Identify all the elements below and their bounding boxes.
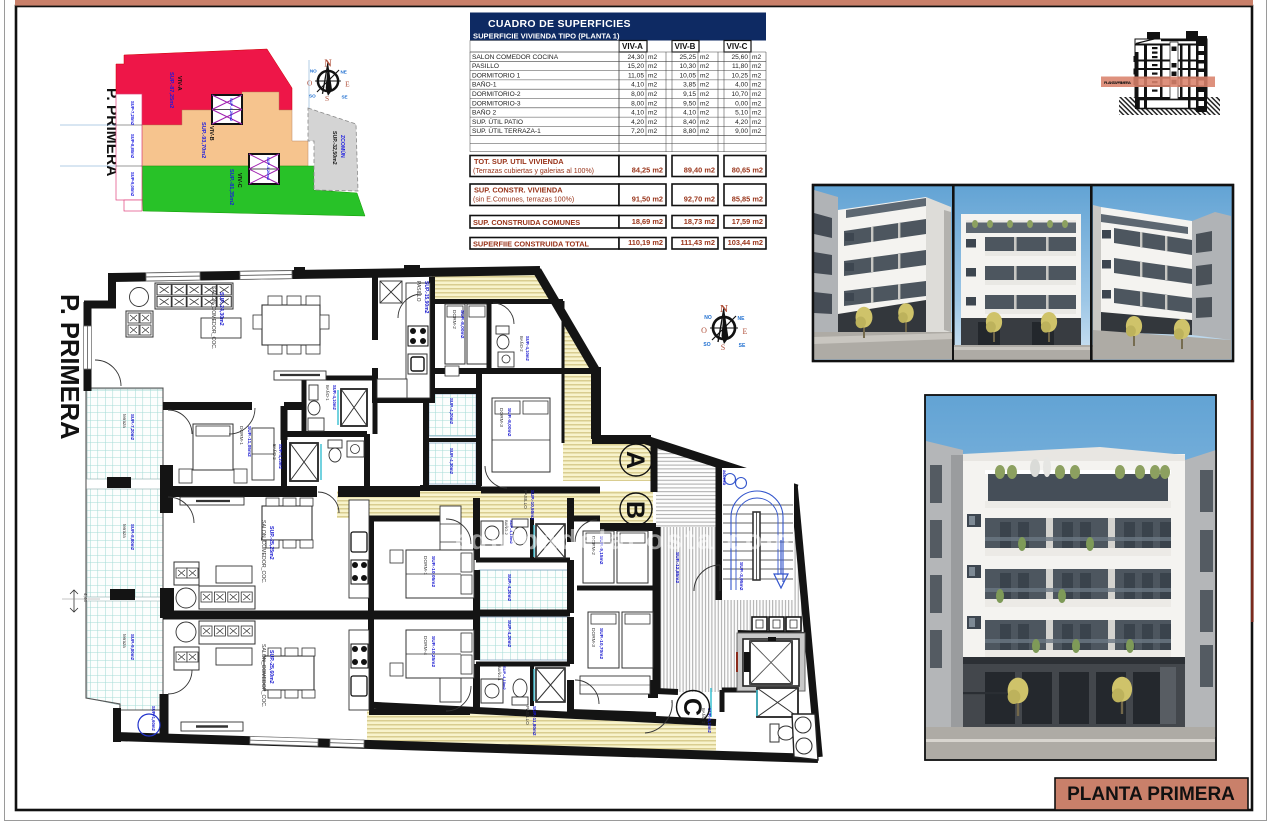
svg-text:m2: m2 — [752, 119, 761, 126]
svg-text:SUP.-4,20m2: SUP.-4,20m2 — [507, 620, 512, 648]
svg-text:89,40 m2: 89,40 m2 — [684, 166, 715, 175]
svg-text:SUP.-8,80m2: SUP.-8,80m2 — [130, 524, 135, 551]
svg-text:SUP. CONSTRUIDA COMUNES: SUP. CONSTRUIDA COMUNES — [473, 218, 580, 227]
svg-text:m2: m2 — [648, 100, 657, 107]
svg-text:PASILLO: PASILLO — [525, 706, 530, 725]
svg-text:BAÑO-1: BAÑO-1 — [497, 666, 502, 682]
svg-text:m2: m2 — [752, 110, 761, 117]
svg-text:BAÑO 2: BAÑO 2 — [472, 108, 497, 117]
svg-text:BAÑO-2: BAÑO-2 — [272, 444, 277, 460]
svg-text:acceso: acceso — [722, 470, 727, 486]
svg-text:11,05: 11,05 — [628, 72, 644, 79]
svg-text:VIV-C: VIV-C — [236, 173, 242, 188]
svg-text:SUP. ÚTIL PATIO: SUP. ÚTIL PATIO — [472, 117, 523, 126]
svg-text:SUP-4,20m2: SUP-4,20m2 — [229, 98, 234, 122]
svg-text:m2: m2 — [752, 82, 761, 89]
svg-text:m2: m2 — [752, 72, 761, 79]
svg-text:9,15: 9,15 — [683, 91, 696, 98]
svg-text:SUP.-7,20m2: SUP.-7,20m2 — [130, 414, 135, 441]
svg-text:SUP.-8,00m2: SUP.-8,00m2 — [459, 310, 465, 339]
svg-text:SUP.-81,35m2: SUP.-81,35m2 — [228, 169, 234, 205]
svg-text:SUP.-25,25m2: SUP.-25,25m2 — [268, 526, 274, 560]
svg-text:DORMITORIO-3: DORMITORIO-3 — [472, 100, 521, 107]
svg-text:17,59 m2: 17,59 m2 — [732, 217, 763, 226]
svg-text:4,20: 4,20 — [631, 119, 644, 126]
svg-text:4,00: 4,00 — [735, 82, 748, 89]
svg-text:SUP.-87,25m2: SUP.-87,25m2 — [168, 72, 174, 108]
svg-text:8,00: 8,00 — [631, 91, 644, 98]
svg-text:SUP.-93,70m2: SUP.-93,70m2 — [200, 122, 206, 158]
svg-text:SUP.-15,90m2: SUP.-15,90m2 — [423, 281, 429, 314]
svg-text:SALON COMEDOR COCINA: SALON COMEDOR COCINA — [472, 54, 559, 61]
svg-text:m2: m2 — [648, 119, 657, 126]
svg-text:8,40: 8,40 — [683, 119, 696, 126]
svg-text:4,20: 4,20 — [735, 119, 748, 126]
svg-text:SUP.-4,10m2: SUP.-4,10m2 — [525, 336, 530, 362]
svg-text:SUP-7,20m2: SUP-7,20m2 — [130, 101, 135, 126]
svg-text:m2: m2 — [700, 119, 709, 126]
svg-text:B: B — [621, 501, 649, 519]
svg-text:4,10: 4,10 — [683, 110, 696, 117]
svg-text:SUP. ÚTIL TERRAZA-1: SUP. ÚTIL TERRAZA-1 — [472, 126, 541, 135]
svg-text:SUP.-1,60m2: SUP.-1,60m2 — [151, 706, 156, 732]
svg-text:SUPERFIIE CONSTRUIDA TOTAL: SUPERFIIE CONSTRUIDA TOTAL — [473, 239, 590, 248]
svg-text:A: A — [621, 451, 649, 469]
svg-text:terraza: terraza — [122, 524, 127, 538]
svg-text:10,30: 10,30 — [679, 63, 696, 70]
svg-text:10,05: 10,05 — [679, 72, 696, 79]
svg-text:BAÑO-2: BAÑO-2 — [519, 336, 524, 352]
svg-text:m2: m2 — [752, 54, 761, 61]
svg-text:SUP.-4,10m2: SUP.-4,10m2 — [278, 444, 283, 470]
svg-text:m2: m2 — [700, 82, 709, 89]
svg-text:18,69 m2: 18,69 m2 — [632, 217, 663, 226]
svg-text:VIV-C: VIV-C — [727, 42, 748, 51]
svg-text:PLANTA PRIMERA: PLANTA PRIMERA — [1104, 80, 1131, 85]
svg-text:SALON_COMEDOR_COC.: SALON_COMEDOR_COC. — [260, 644, 266, 707]
svg-text:VIV-A: VIV-A — [176, 76, 182, 91]
svg-text:SUP.-4,20m2: SUP.-4,20m2 — [507, 574, 512, 602]
svg-text:SUP.-3,95m2: SUP.-3,95m2 — [738, 562, 744, 591]
svg-text:SUPERFICIE VIVIENDA TIPO (PLA: SUPERFICIE VIVIENDA TIPO (PLANTA 1) — [473, 32, 620, 41]
svg-text:terraza: terraza — [122, 634, 127, 648]
svg-text:4,10: 4,10 — [631, 82, 644, 89]
svg-text:m2: m2 — [700, 54, 709, 61]
svg-text:25,25: 25,25 — [679, 54, 696, 61]
svg-text:DORM-3: DORM-3 — [590, 628, 596, 647]
svg-text:m2: m2 — [648, 91, 657, 98]
svg-text:110,19 m2: 110,19 m2 — [628, 238, 663, 247]
svg-text:5,10: 5,10 — [735, 110, 748, 117]
svg-text:m2: m2 — [752, 63, 761, 70]
svg-text:m2: m2 — [700, 128, 709, 135]
svg-text:DORM-4: DORM-4 — [422, 636, 428, 655]
svg-text:m2: m2 — [648, 110, 657, 117]
svg-text:SUP.-4,20m2: SUP.-4,20m2 — [449, 398, 454, 425]
svg-text:m2: m2 — [752, 128, 761, 135]
svg-text:111,43 m2: 111,43 m2 — [680, 238, 715, 247]
svg-text:BAÑO-1: BAÑO-1 — [472, 80, 497, 89]
svg-text:15,20: 15,20 — [627, 63, 644, 70]
svg-text:103,44 m2: 103,44 m2 — [728, 238, 763, 247]
svg-text:ZCOMÚN: ZCOMÚN — [339, 135, 346, 158]
svg-text:92,70 m2: 92,70 m2 — [684, 195, 715, 204]
svg-text:11,80: 11,80 — [732, 63, 748, 70]
svg-text:TOT. SUP. UTIL VIVIENDA: TOT. SUP. UTIL VIVIENDA — [474, 157, 564, 166]
svg-text:SUP.-9,00m2: SUP.-9,00m2 — [130, 634, 135, 661]
svg-text:25,60: 25,60 — [731, 54, 748, 61]
svg-text:(sin E.Comunes, terrazas 100%): (sin E.Comunes, terrazas 100%) — [473, 197, 574, 204]
svg-text:SALON_COMEDOR_COC.: SALON_COMEDOR_COC. — [210, 286, 216, 349]
svg-text:quipadelacosta com: quipadelacosta com — [470, 524, 793, 555]
svg-text:SUP.-10,50m2: SUP.-10,50m2 — [530, 490, 535, 520]
svg-text:DORM-1: DORM-1 — [422, 556, 428, 575]
svg-text:P. PRIMERA: P. PRIMERA — [55, 294, 83, 439]
svg-text:C: C — [678, 698, 706, 716]
svg-text:m2: m2 — [752, 91, 761, 98]
svg-text:SUP.-4,10m2: SUP.-4,10m2 — [332, 385, 337, 411]
svg-text:terraza: terraza — [122, 414, 127, 428]
svg-text:SUP-4,20m2: SUP-4,20m2 — [266, 157, 271, 181]
svg-text:m2: m2 — [648, 128, 657, 135]
svg-text:SUP.-4,10m2: SUP.-4,10m2 — [502, 666, 507, 690]
svg-text:PASILLO: PASILLO — [472, 63, 499, 70]
svg-text:10,70: 10,70 — [731, 91, 748, 98]
svg-text:8,00: 8,00 — [631, 100, 644, 107]
svg-text:9,00: 9,00 — [735, 128, 748, 135]
svg-text:SUP.-32,50m2: SUP.-32,50m2 — [331, 131, 337, 165]
svg-text:SUP. CONSTR. VIVIENDA: SUP. CONSTR. VIVIENDA — [474, 186, 563, 195]
svg-text:SUP.-8,00m2: SUP.-8,00m2 — [506, 408, 512, 437]
svg-text:9,50: 9,50 — [683, 100, 696, 107]
svg-text:m2: m2 — [648, 82, 657, 89]
svg-text:CUADRO DE SUPERFICIES: CUADRO DE SUPERFICIES — [488, 18, 631, 30]
svg-text:84,25 m2: 84,25 m2 — [632, 166, 663, 175]
svg-text:SUP.-10,25m2: SUP.-10,25m2 — [430, 636, 436, 667]
svg-text:PASILLO: PASILLO — [523, 490, 528, 509]
svg-text:PASILLO: PASILLO — [415, 281, 421, 302]
svg-text:10,25: 10,25 — [731, 72, 748, 79]
svg-text:SUP.-12,85m2: SUP.-12,85m2 — [674, 552, 680, 583]
svg-text:m2: m2 — [648, 54, 657, 61]
svg-text:m2: m2 — [700, 72, 709, 79]
svg-text:VIV-B: VIV-B — [208, 126, 214, 141]
svg-text:4,44: 4,44 — [83, 593, 88, 602]
svg-text:SUP.-25,60m2: SUP.-25,60m2 — [268, 650, 274, 684]
svg-text:SUP-9,00m2: SUP-9,00m2 — [130, 172, 135, 197]
svg-text:m2: m2 — [648, 72, 657, 79]
svg-text:SUP.-4,30m2: SUP.-4,30m2 — [449, 448, 454, 475]
svg-text:m2: m2 — [700, 63, 709, 70]
svg-text:m2: m2 — [752, 100, 761, 107]
svg-text:91,50 m2: 91,50 m2 — [632, 195, 663, 204]
svg-text:0,00: 0,00 — [735, 100, 748, 107]
svg-text:m2: m2 — [700, 100, 709, 107]
svg-text:m2: m2 — [700, 91, 709, 98]
svg-text:SUP-8,80m2: SUP-8,80m2 — [130, 134, 135, 159]
svg-text:VIV-A: VIV-A — [622, 42, 643, 51]
svg-text:m2: m2 — [700, 110, 709, 117]
svg-text:80,65 m2: 80,65 m2 — [732, 166, 763, 175]
svg-text:85,85 m2: 85,85 m2 — [732, 195, 763, 204]
svg-text:SUP.-10,05m2: SUP.-10,05m2 — [430, 556, 436, 587]
svg-text:VIV-B: VIV-B — [675, 42, 696, 51]
svg-text:SUP.-11,80m2: SUP.-11,80m2 — [532, 706, 537, 736]
svg-text:18,73 m2: 18,73 m2 — [684, 217, 715, 226]
svg-text:BAÑO-1: BAÑO-1 — [325, 385, 330, 401]
svg-text:3,85: 3,85 — [683, 82, 696, 89]
svg-text:SUP.-11,05m2: SUP.-11,05m2 — [246, 426, 252, 457]
svg-text:DORM-1: DORM-1 — [238, 426, 244, 445]
svg-text:SALON_COMEDOR_COC.: SALON_COMEDOR_COC. — [260, 520, 266, 583]
svg-text:DORMITORIO-2: DORMITORIO-2 — [472, 91, 521, 98]
svg-text:4,10: 4,10 — [631, 110, 644, 117]
svg-text:DORMITORIO 1: DORMITORIO 1 — [472, 72, 521, 79]
svg-text:24,30: 24,30 — [627, 54, 644, 61]
svg-text:DORM-3: DORM-3 — [498, 408, 504, 427]
svg-text:DORM-2: DORM-2 — [451, 310, 457, 329]
svg-text:SUP.-10,70m2: SUP.-10,70m2 — [598, 628, 604, 659]
svg-text:7,20: 7,20 — [631, 128, 644, 135]
svg-text:8,80: 8,80 — [683, 128, 696, 135]
svg-text:PLANTA PRIMERA: PLANTA PRIMERA — [1067, 784, 1235, 805]
svg-text:m2: m2 — [648, 63, 657, 70]
svg-text:(Terrazas cubiertas y galerias: (Terrazas cubiertas y galerias al 100%) — [473, 168, 594, 175]
svg-text:SUP.-24,30m2: SUP.-24,30m2 — [218, 292, 224, 326]
